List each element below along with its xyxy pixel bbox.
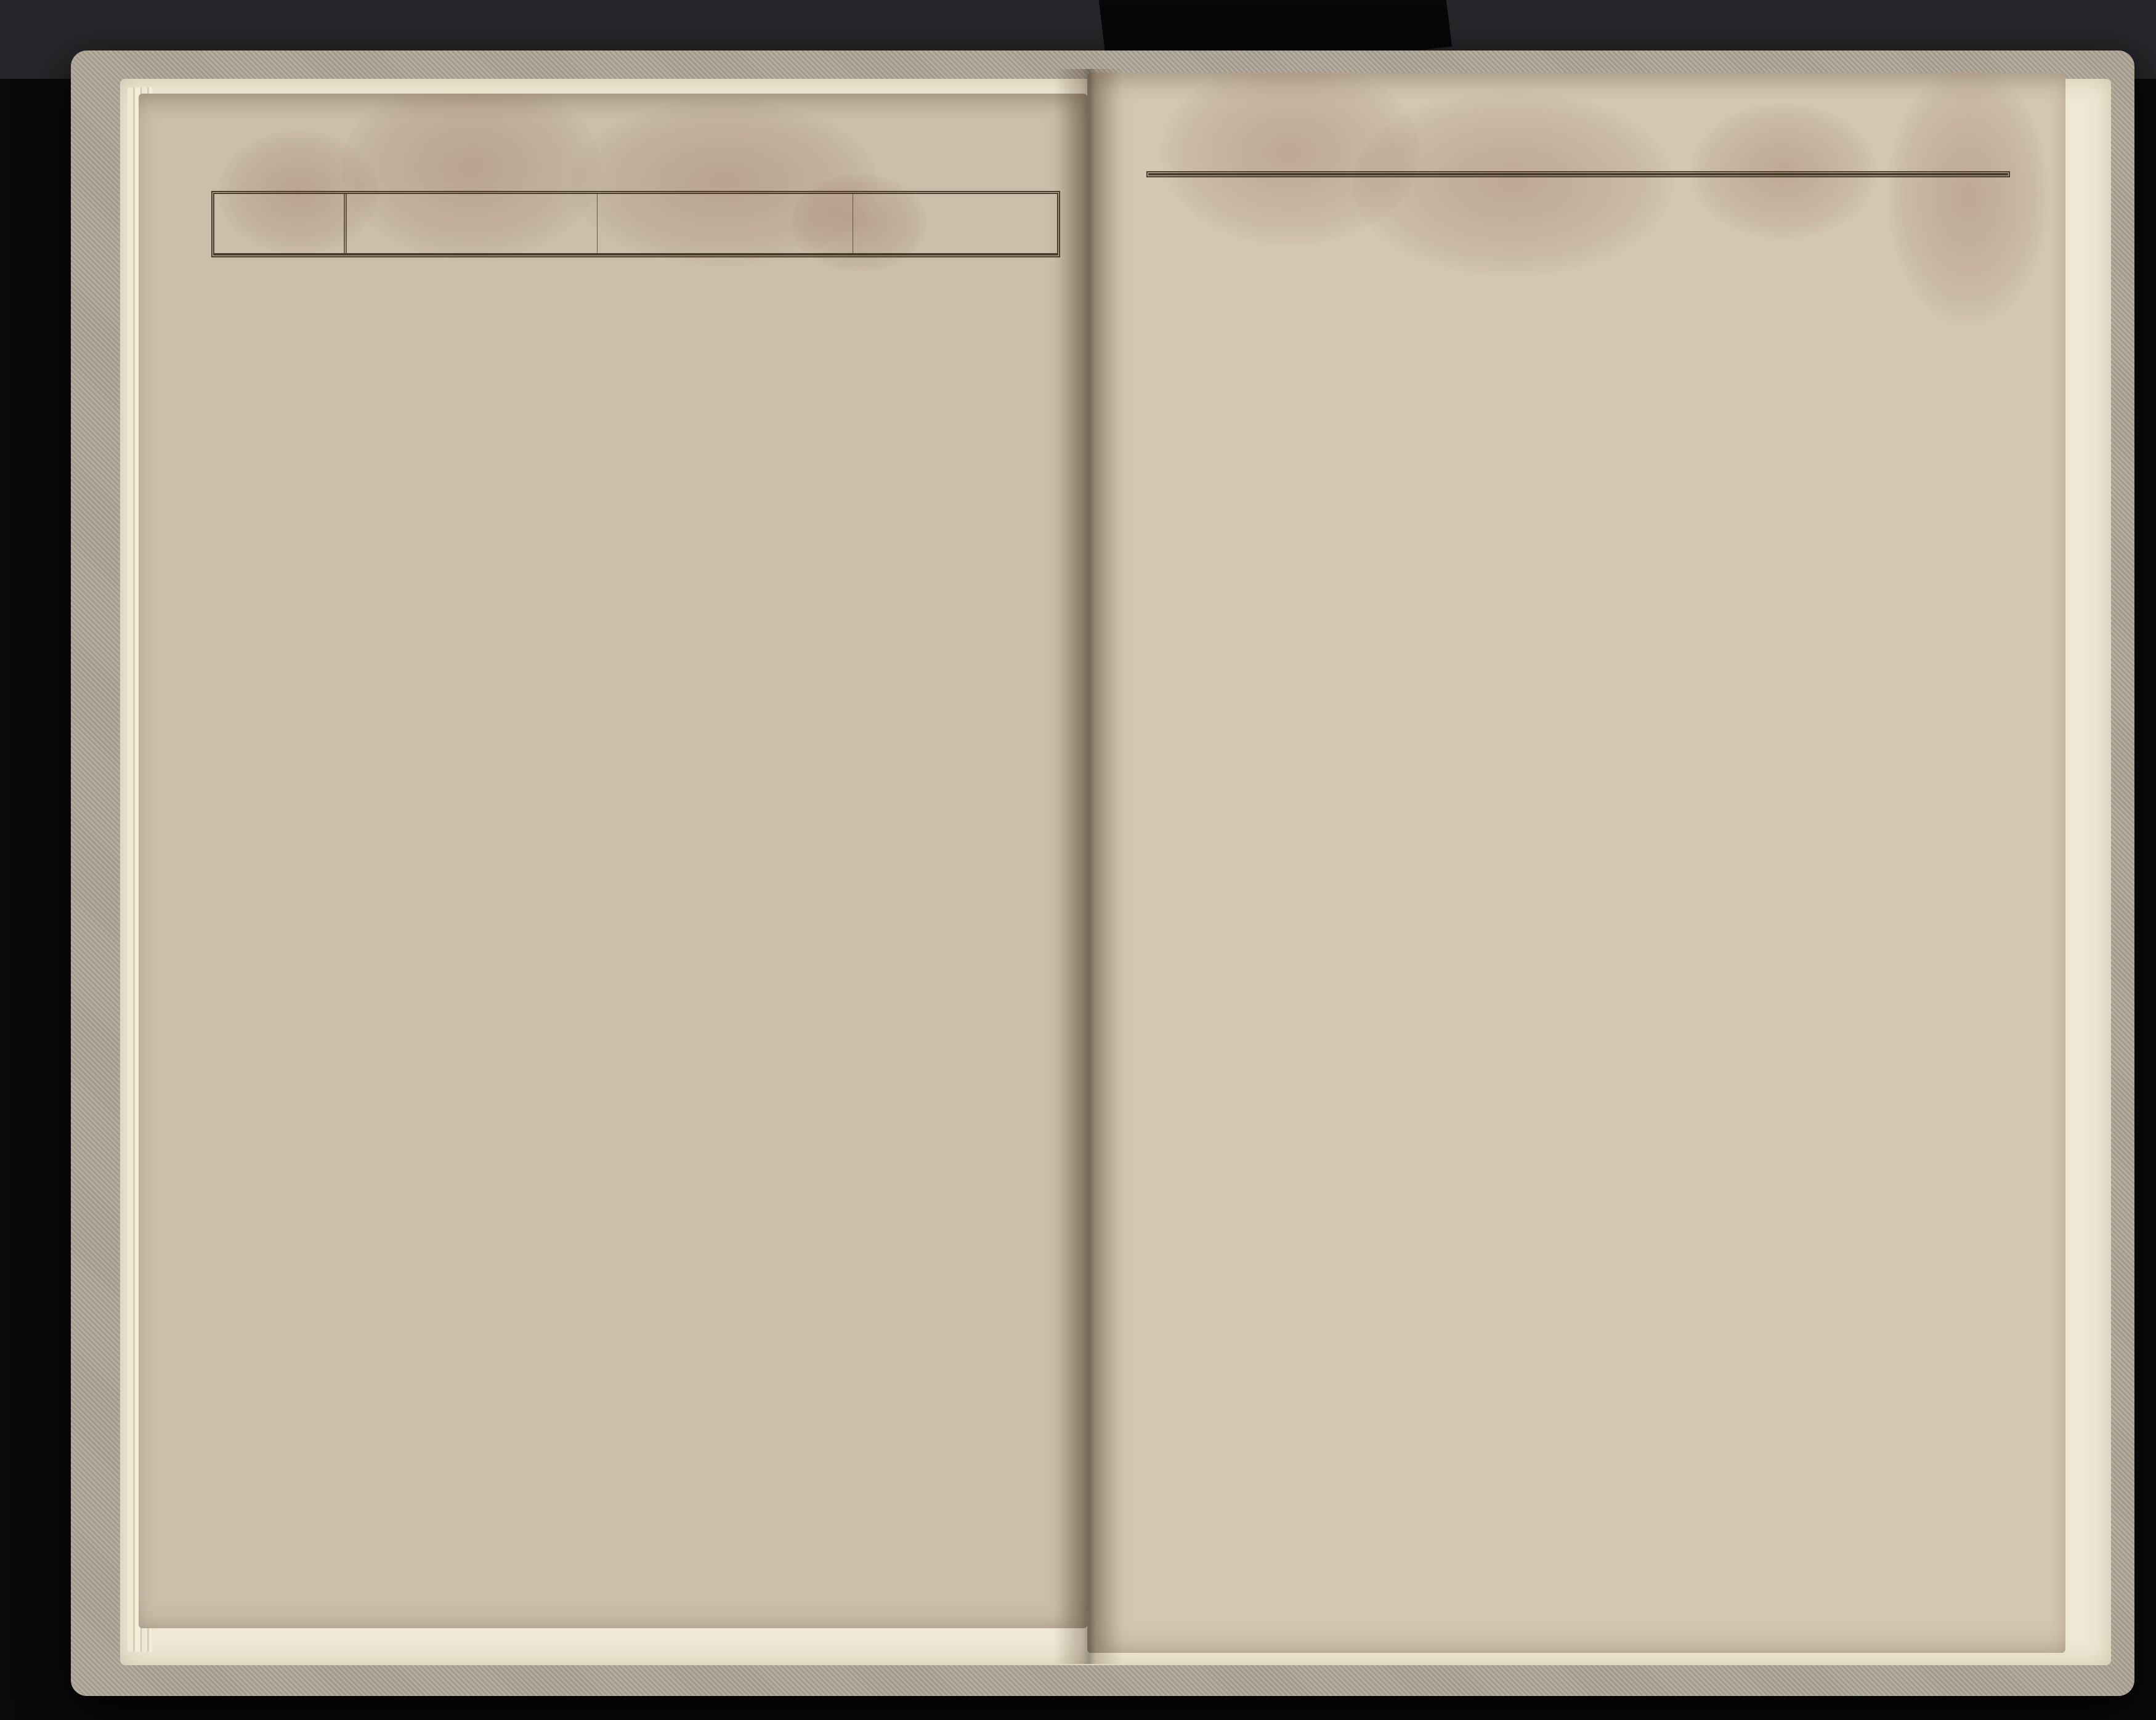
paper-stain (1161, 73, 1420, 245)
corner-cell (214, 194, 347, 253)
left-page (139, 94, 1087, 1628)
header-sponsus (347, 194, 598, 253)
paper-stain (1888, 73, 2048, 325)
table-header-band (214, 194, 1057, 254)
right-page (1087, 73, 2065, 1653)
paper-stain (1352, 91, 1672, 276)
marriage-register-table-right (1146, 171, 2010, 177)
header-testes (853, 194, 1057, 253)
header-sponsa (598, 194, 853, 253)
photo-of-register-book: { "scene": { "background_color": "#0a0a0… (0, 0, 2156, 1720)
register-book (71, 50, 2134, 1696)
marriage-register-table-left (211, 191, 1060, 257)
